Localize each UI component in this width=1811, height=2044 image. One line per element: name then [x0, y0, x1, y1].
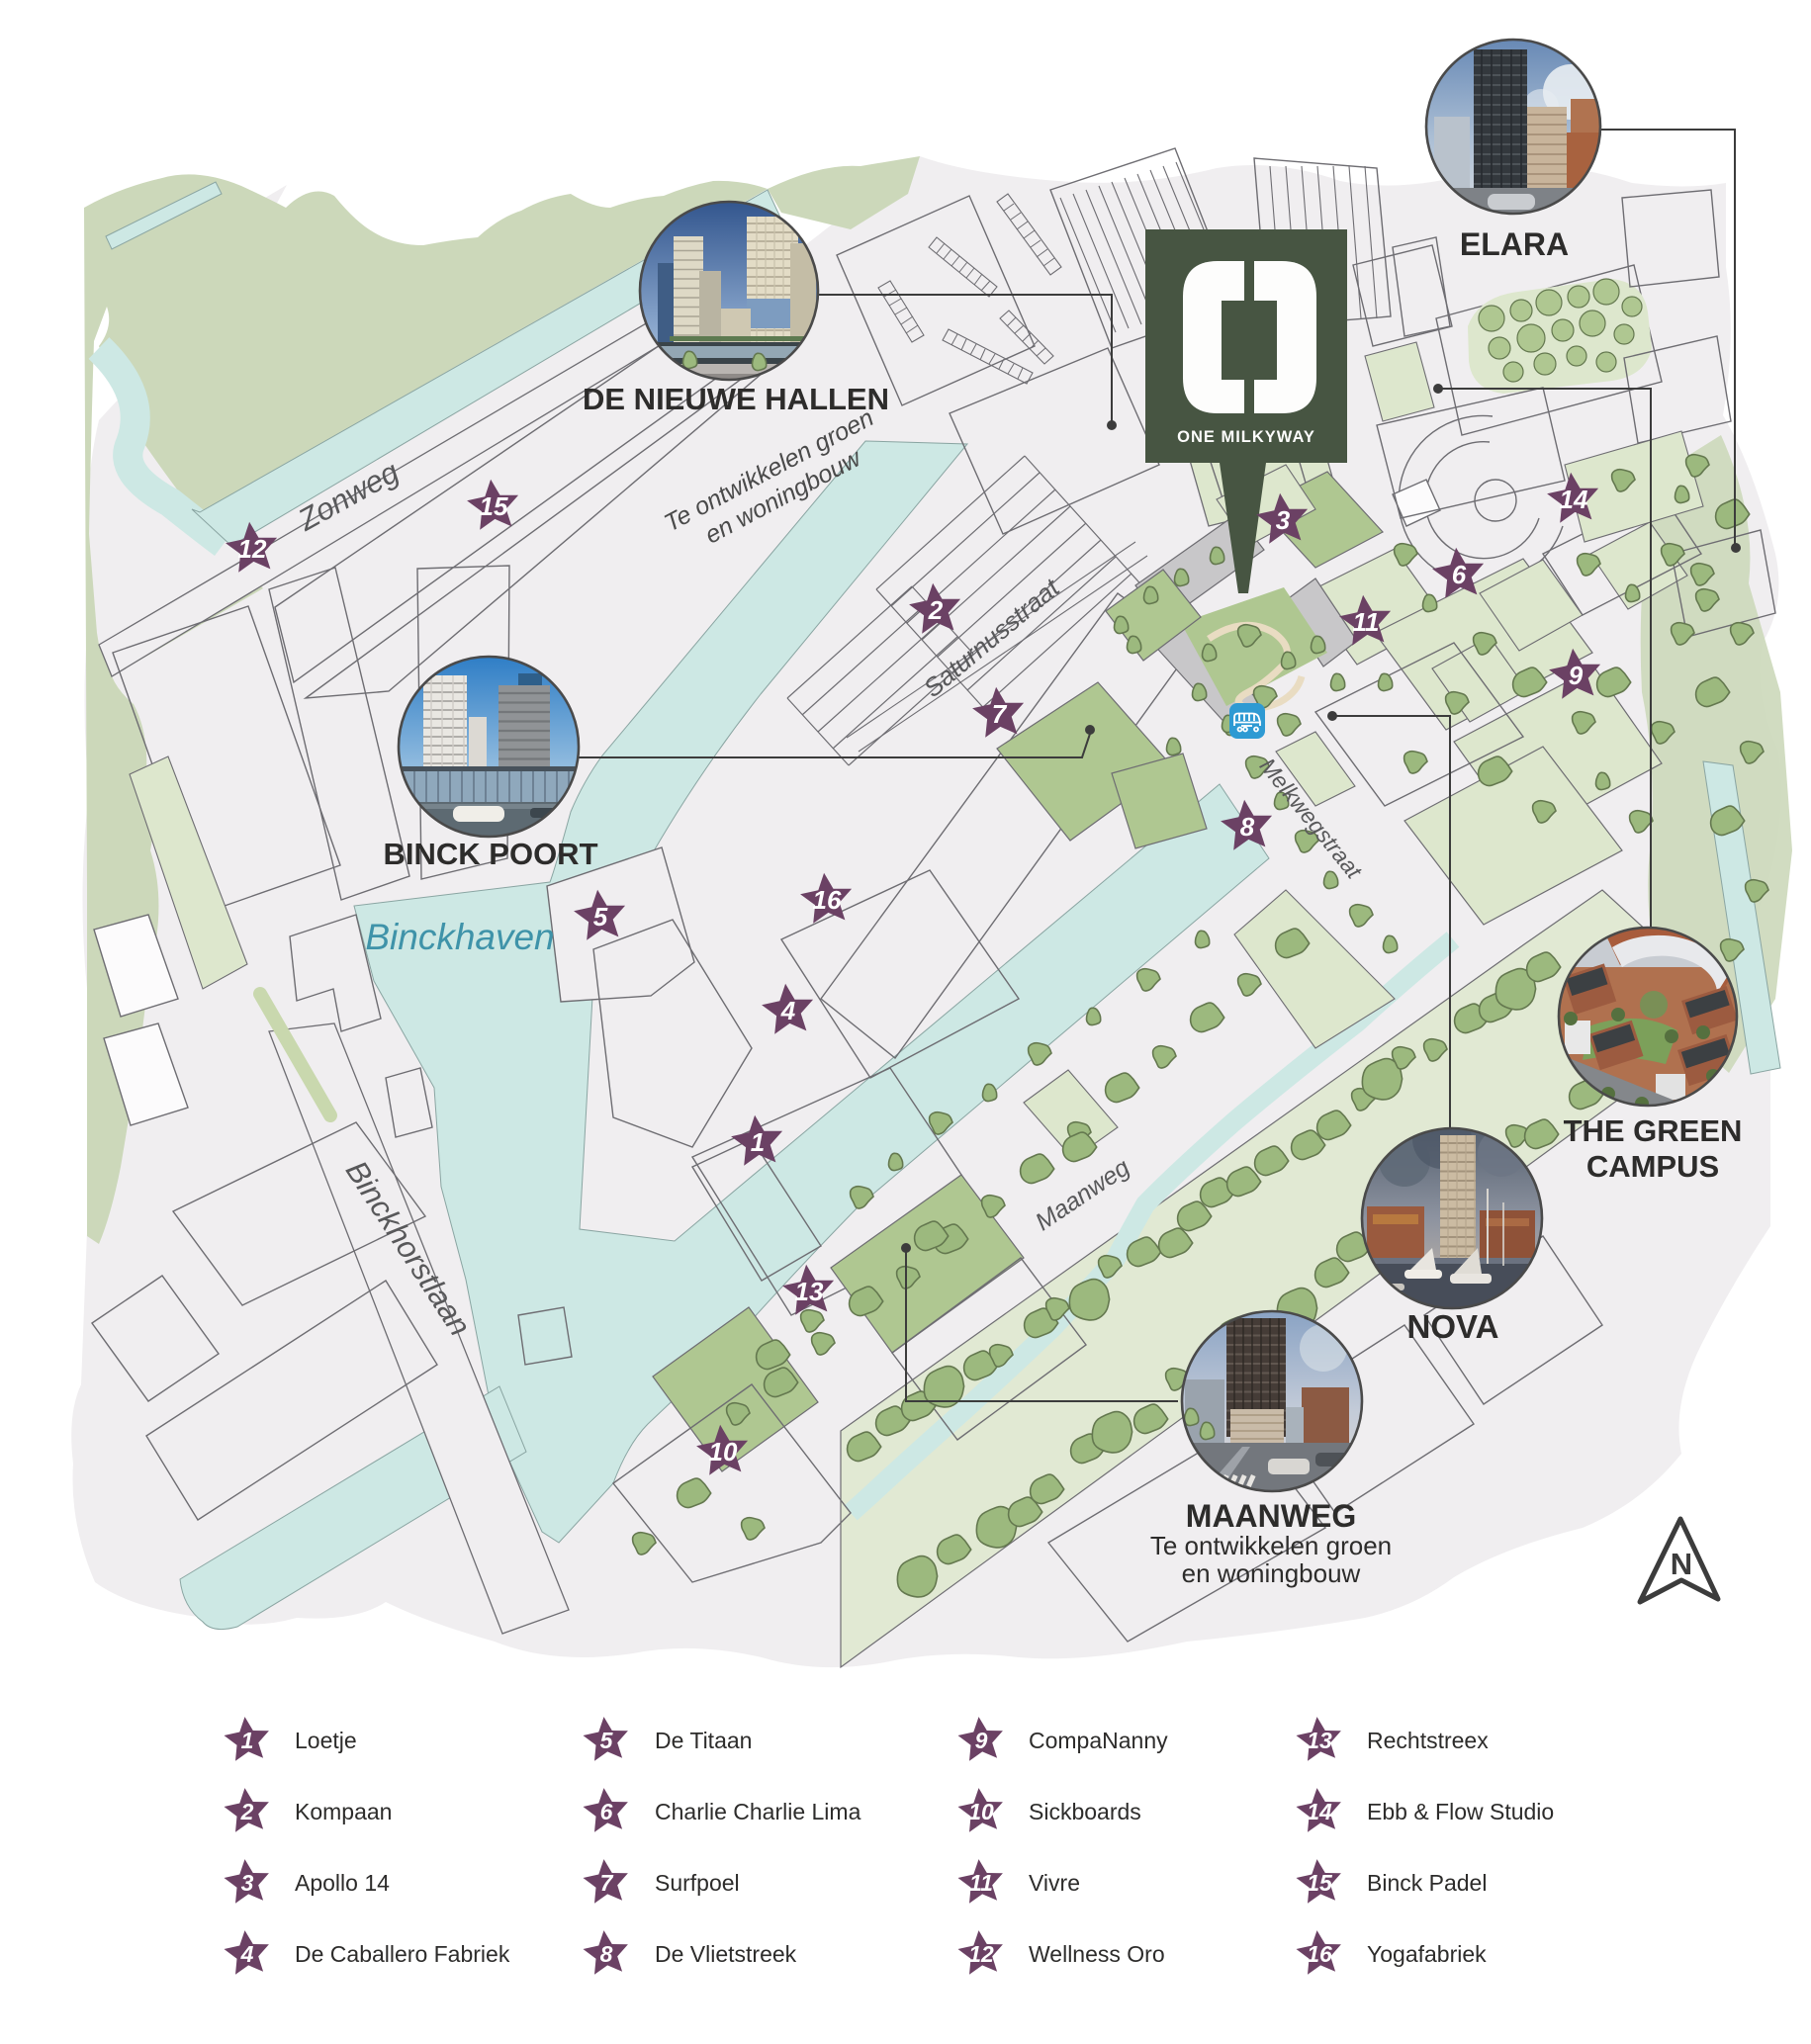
svg-text:Ebb & Flow Studio: Ebb & Flow Studio	[1367, 1799, 1554, 1824]
svg-text:6: 6	[600, 1799, 613, 1824]
svg-text:Charlie Charlie Lima: Charlie Charlie Lima	[655, 1799, 861, 1824]
svg-text:2: 2	[240, 1799, 254, 1824]
svg-text:3: 3	[1276, 505, 1291, 535]
svg-text:ONE MILKYWAY: ONE MILKYWAY	[1177, 428, 1315, 446]
svg-text:N: N	[1671, 1547, 1692, 1581]
svg-text:NOVA: NOVA	[1407, 1308, 1499, 1345]
svg-text:CAMPUS: CAMPUS	[1586, 1149, 1719, 1184]
svg-text:De Titaan: De Titaan	[655, 1728, 752, 1753]
svg-text:De Caballero Fabriek: De Caballero Fabriek	[295, 1941, 510, 1967]
svg-text:Vivre: Vivre	[1029, 1870, 1080, 1896]
svg-text:ELARA: ELARA	[1460, 226, 1569, 262]
svg-text:3: 3	[241, 1870, 254, 1896]
svg-text:9: 9	[975, 1728, 988, 1753]
svg-text:CompaNanny: CompaNanny	[1029, 1728, 1168, 1753]
svg-text:16: 16	[1307, 1941, 1332, 1967]
svg-text:11: 11	[1353, 607, 1380, 637]
svg-text:8: 8	[600, 1941, 613, 1967]
svg-text:MAANWEG: MAANWEG	[1186, 1498, 1356, 1534]
svg-text:13: 13	[795, 1277, 824, 1306]
svg-text:14: 14	[1307, 1799, 1332, 1824]
svg-text:4: 4	[240, 1941, 254, 1967]
svg-text:15: 15	[480, 491, 508, 521]
svg-text:5: 5	[593, 902, 608, 932]
svg-text:2: 2	[928, 595, 944, 625]
svg-text:Wellness Oro: Wellness Oro	[1029, 1941, 1165, 1967]
svg-text:Yogafabriek: Yogafabriek	[1367, 1941, 1487, 1967]
svg-text:1: 1	[241, 1728, 254, 1753]
svg-text:THE GREEN: THE GREEN	[1564, 1113, 1743, 1148]
svg-text:en woningbouw: en woningbouw	[1182, 1558, 1361, 1588]
svg-text:9: 9	[1569, 661, 1584, 690]
svg-text:7: 7	[600, 1870, 614, 1896]
svg-text:10: 10	[968, 1799, 994, 1824]
svg-text:8: 8	[1240, 812, 1255, 842]
svg-text:BINCK POORT: BINCK POORT	[384, 837, 598, 871]
svg-text:Sickboards: Sickboards	[1029, 1799, 1141, 1824]
svg-text:5: 5	[600, 1728, 614, 1753]
svg-text:Rechtstreex: Rechtstreex	[1367, 1728, 1489, 1753]
svg-text:7: 7	[992, 699, 1008, 729]
svg-text:Te ontwikkelen groen: Te ontwikkelen groen	[1150, 1531, 1392, 1560]
svg-text:12: 12	[968, 1941, 994, 1967]
svg-text:DE NIEUWE HALLEN: DE NIEUWE HALLEN	[583, 382, 889, 416]
svg-text:De Vlietstreek: De Vlietstreek	[655, 1941, 797, 1967]
svg-text:Binck Padel: Binck Padel	[1367, 1870, 1487, 1896]
svg-text:12: 12	[238, 534, 267, 564]
svg-text:1: 1	[751, 1127, 765, 1157]
svg-text:4: 4	[780, 996, 796, 1025]
svg-text:Loetje: Loetje	[295, 1728, 357, 1753]
svg-text:Surfpoel: Surfpoel	[655, 1870, 740, 1896]
svg-text:Apollo 14: Apollo 14	[295, 1870, 390, 1896]
svg-text:Binckhaven: Binckhaven	[365, 917, 554, 957]
svg-text:13: 13	[1307, 1728, 1332, 1753]
svg-text:10: 10	[709, 1437, 738, 1466]
svg-text:6: 6	[1452, 560, 1467, 589]
svg-text:Kompaan: Kompaan	[295, 1799, 392, 1824]
svg-text:16: 16	[813, 885, 842, 915]
svg-text:15: 15	[1307, 1870, 1333, 1896]
svg-text:11: 11	[969, 1870, 993, 1896]
svg-text:14: 14	[1560, 485, 1588, 514]
